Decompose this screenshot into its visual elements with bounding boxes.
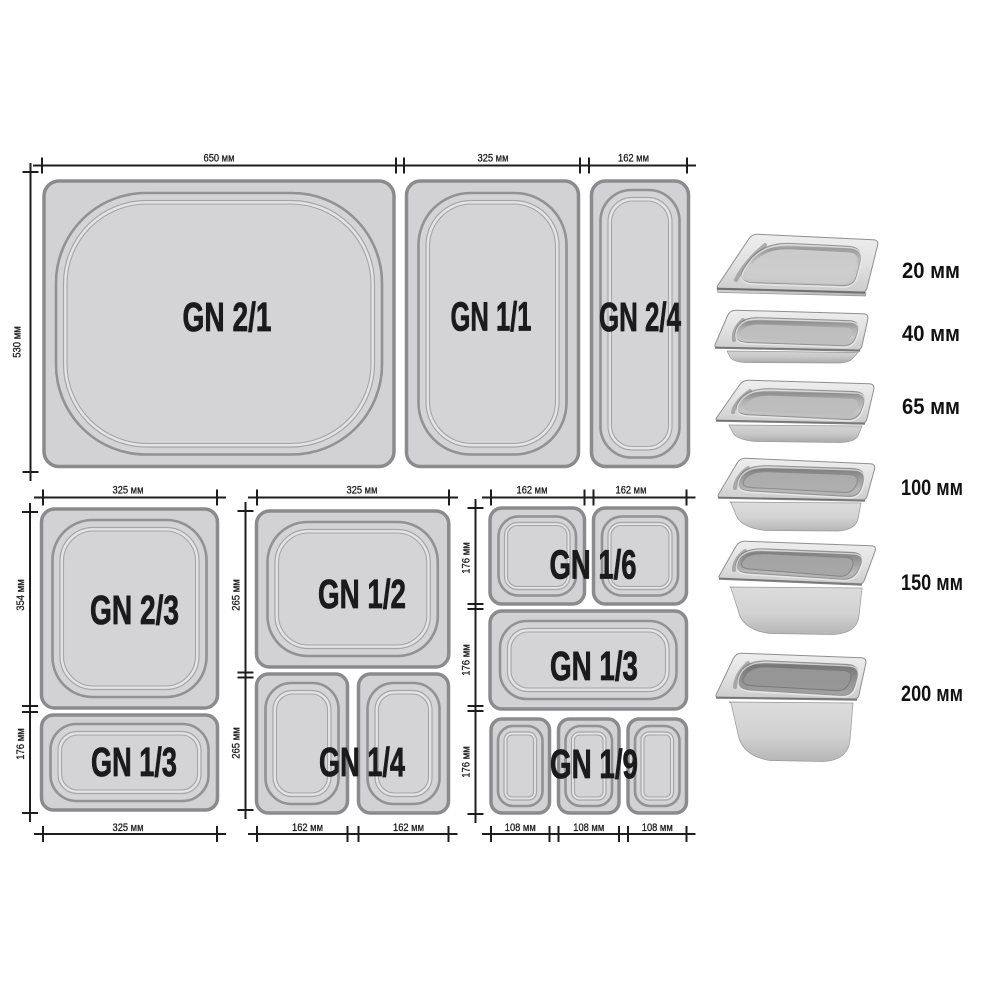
svg-text:GN 1/9: GN 1/9: [550, 741, 638, 787]
svg-text:265 мм: 265 мм: [231, 727, 243, 759]
svg-text:176 мм: 176 мм: [461, 542, 473, 574]
svg-text:GN 1/4: GN 1/4: [319, 739, 405, 785]
svg-text:325 мм: 325 мм: [113, 485, 144, 497]
svg-text:162 мм: 162 мм: [517, 485, 548, 497]
svg-text:530 мм: 530 мм: [12, 326, 24, 358]
svg-text:162 мм: 162 мм: [393, 822, 424, 834]
svg-text:20 мм: 20 мм: [902, 258, 960, 283]
svg-text:GN 1/2: GN 1/2: [318, 571, 406, 617]
svg-text:GN 2/3: GN 2/3: [90, 587, 179, 633]
svg-text:GN 1/1: GN 1/1: [451, 294, 532, 340]
svg-text:150 мм: 150 мм: [901, 570, 963, 595]
svg-text:176 мм: 176 мм: [461, 644, 473, 676]
svg-text:162 мм: 162 мм: [618, 153, 649, 165]
svg-text:354 мм: 354 мм: [15, 579, 27, 611]
svg-text:162 мм: 162 мм: [292, 822, 323, 834]
svg-text:GN 1/3: GN 1/3: [550, 643, 638, 689]
svg-text:GN 2/4: GN 2/4: [599, 294, 681, 340]
svg-text:650 мм: 650 мм: [204, 153, 235, 165]
svg-text:100 мм: 100 мм: [901, 475, 963, 500]
svg-text:65 мм: 65 мм: [902, 394, 960, 419]
svg-text:GN 1/6: GN 1/6: [550, 542, 637, 588]
svg-text:176 мм: 176 мм: [15, 728, 27, 760]
svg-text:325 мм: 325 мм: [478, 153, 509, 165]
svg-text:176 мм: 176 мм: [461, 746, 473, 778]
svg-text:325 мм: 325 мм: [347, 485, 378, 497]
svg-text:GN 1/3: GN 1/3: [91, 739, 177, 785]
svg-text:108 мм: 108 мм: [505, 822, 536, 834]
svg-text:162 мм: 162 мм: [616, 485, 647, 497]
svg-text:325 мм: 325 мм: [113, 822, 144, 834]
svg-text:108 мм: 108 мм: [573, 822, 604, 834]
svg-text:265 мм: 265 мм: [231, 579, 243, 611]
svg-text:40 мм: 40 мм: [902, 321, 960, 346]
svg-text:108 мм: 108 мм: [642, 822, 673, 834]
svg-text:200 мм: 200 мм: [901, 681, 963, 706]
svg-text:GN 2/1: GN 2/1: [183, 294, 272, 340]
